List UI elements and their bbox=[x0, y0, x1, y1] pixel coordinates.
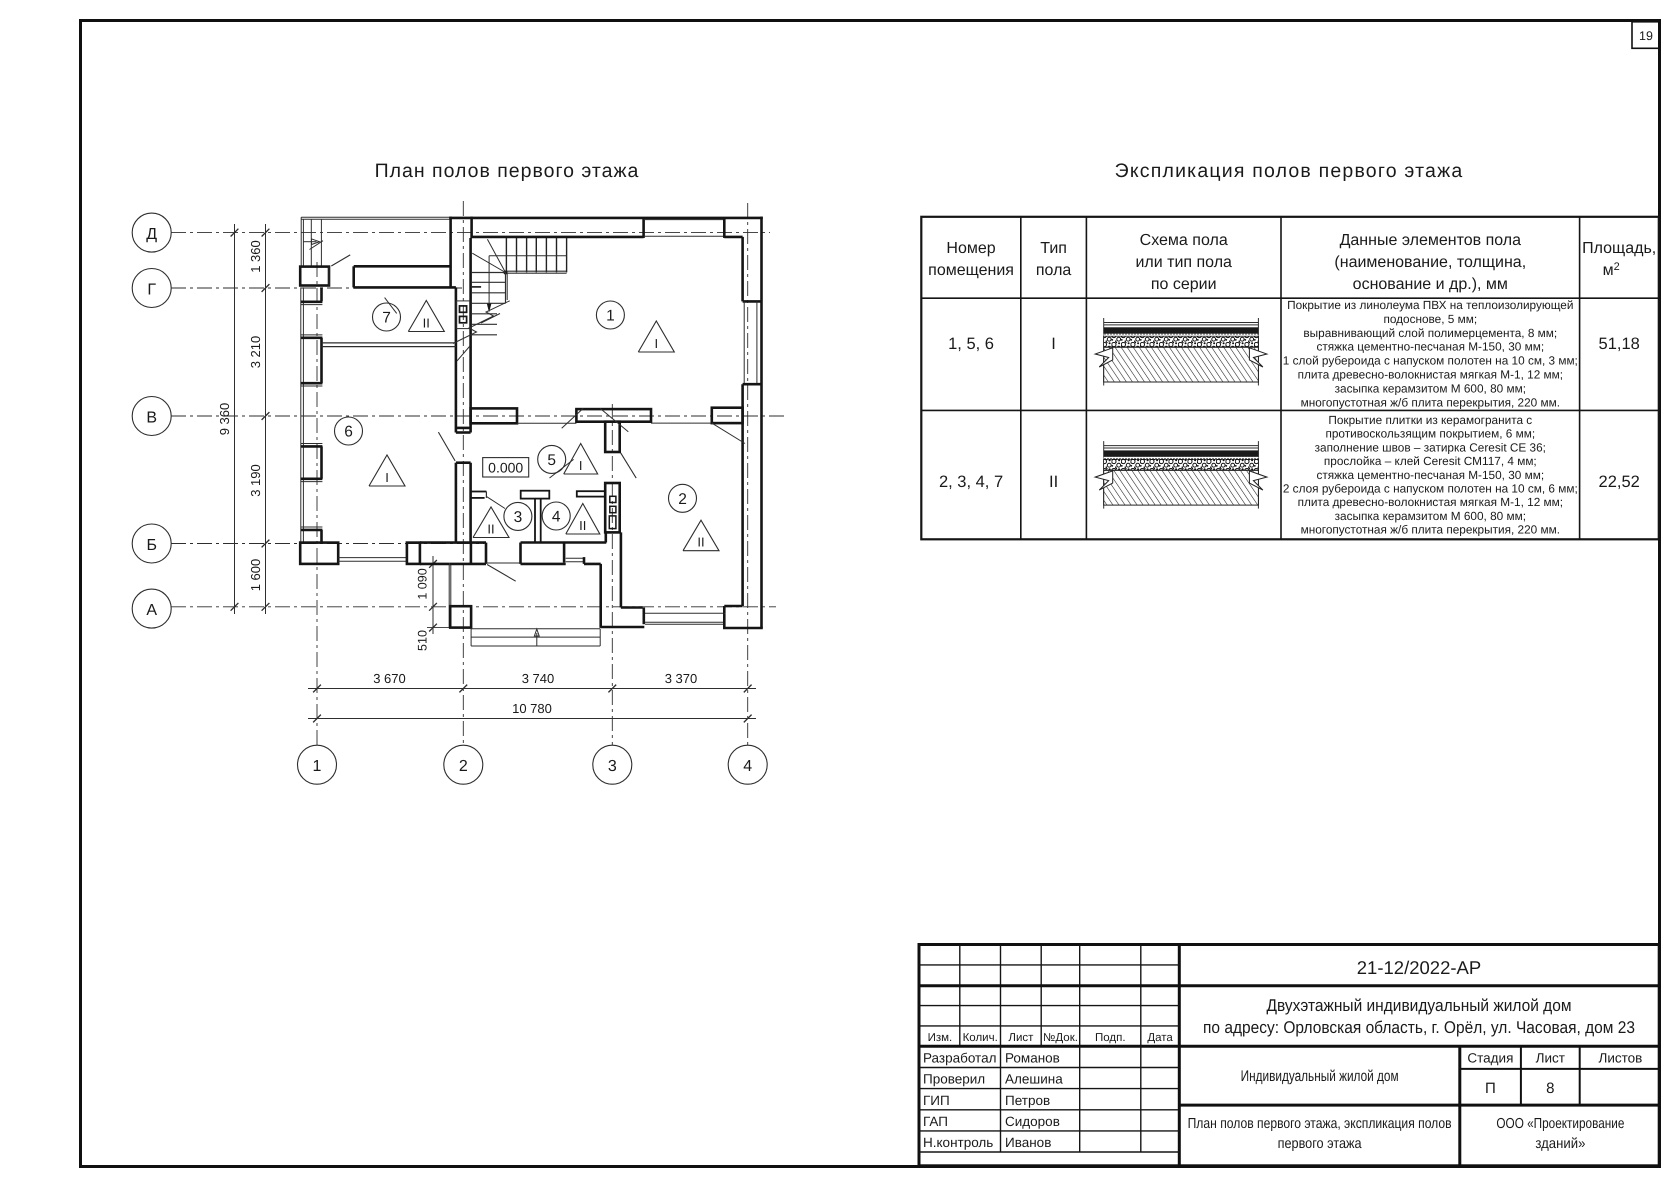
svg-text:1 360: 1 360 bbox=[248, 240, 263, 273]
svg-text:3 370: 3 370 bbox=[665, 671, 698, 686]
svg-text:Двухэтажный индивидуальный жил: Двухэтажный индивидуальный жилой дом bbox=[1267, 996, 1572, 1015]
svg-text:Б: Б bbox=[146, 537, 157, 554]
svg-text:Колич.: Колич. bbox=[963, 1032, 998, 1044]
svg-text:Романов: Романов bbox=[1005, 1051, 1060, 1066]
svg-text:засыпка керамзитом М 600, 80 м: засыпка керамзитом М 600, 80 мм; bbox=[1335, 509, 1526, 523]
svg-text:ООО «Проектирование: ООО «Проектирование bbox=[1496, 1116, 1624, 1132]
svg-text:Листов: Листов bbox=[1598, 1051, 1642, 1066]
svg-text:51,18: 51,18 bbox=[1599, 335, 1640, 353]
svg-text:Лист: Лист bbox=[1536, 1051, 1565, 1066]
svg-text:стяжка цементно-песчаная М-150: стяжка цементно-песчаная М-150, 30 мм; bbox=[1316, 340, 1544, 354]
svg-text:Стадия: Стадия bbox=[1467, 1051, 1513, 1066]
svg-text:Лист: Лист bbox=[1008, 1032, 1034, 1044]
svg-text:3 210: 3 210 bbox=[248, 336, 263, 369]
svg-text:4: 4 bbox=[743, 758, 752, 775]
svg-text:2: 2 bbox=[678, 491, 687, 508]
svg-text:ГИП: ГИП bbox=[923, 1093, 950, 1108]
svg-text:1, 5, 6: 1, 5, 6 bbox=[948, 335, 994, 353]
svg-text:пола: пола bbox=[1036, 262, 1072, 279]
svg-text:1 090: 1 090 bbox=[416, 568, 430, 599]
svg-text:Площадь,: Площадь, bbox=[1582, 240, 1656, 257]
svg-text:II: II bbox=[1049, 473, 1058, 491]
svg-text:многопустотная ж/б плита перек: многопустотная ж/б плита перекрытия, 220… bbox=[1301, 523, 1560, 537]
svg-text:А: А bbox=[146, 602, 157, 619]
svg-text:21-12/2022-АР: 21-12/2022-АР bbox=[1357, 957, 1481, 978]
svg-text:3 190: 3 190 bbox=[248, 464, 263, 497]
svg-text:Изм.: Изм. bbox=[928, 1032, 953, 1044]
svg-text:многопустотная ж/б плита перек: многопустотная ж/б плита перекрытия, 220… bbox=[1301, 395, 1560, 409]
svg-text:II: II bbox=[487, 522, 494, 537]
svg-text:Тип: Тип bbox=[1040, 240, 1067, 257]
svg-text:Проверил: Проверил bbox=[923, 1072, 985, 1087]
svg-text:Подп.: Подп. bbox=[1095, 1032, 1126, 1044]
svg-text:II: II bbox=[697, 535, 704, 550]
svg-text:прослойка – клей Ceresit СМ117: прослойка – клей Ceresit СМ117, 4 мм; bbox=[1324, 454, 1537, 468]
svg-text:I: I bbox=[385, 470, 389, 485]
svg-text:7: 7 bbox=[382, 310, 391, 327]
svg-text:№Док.: №Док. bbox=[1043, 1032, 1078, 1044]
svg-text:засыпка керамзитом М 600, 80 м: засыпка керамзитом М 600, 80 мм; bbox=[1335, 381, 1526, 395]
svg-text:Экспликация полов первого этаж: Экспликация полов первого этажа bbox=[1115, 160, 1464, 182]
svg-text:П: П bbox=[1485, 1080, 1496, 1097]
svg-text:9 360: 9 360 bbox=[217, 403, 232, 436]
svg-text:по серии: по серии bbox=[1151, 276, 1217, 293]
svg-text:помещения: помещения bbox=[928, 262, 1014, 279]
svg-text:В: В bbox=[146, 409, 157, 426]
svg-text:3: 3 bbox=[608, 758, 617, 775]
svg-text:противоскользящим покрытием, 6: противоскользящим покрытием, 6 мм; bbox=[1325, 427, 1535, 441]
svg-text:2, 3, 4, 7: 2, 3, 4, 7 bbox=[939, 473, 1003, 491]
svg-text:по адресу: Орловская область,: по адресу: Орловская область, г. Орёл, у… bbox=[1203, 1018, 1635, 1037]
svg-text:Иванов: Иванов bbox=[1005, 1135, 1051, 1150]
svg-text:I: I bbox=[654, 336, 658, 351]
svg-text:8: 8 bbox=[1546, 1080, 1554, 1097]
svg-text:3 670: 3 670 bbox=[373, 671, 406, 686]
svg-text:подоснове, 5 мм;: подоснове, 5 мм; bbox=[1383, 312, 1477, 326]
svg-text:2: 2 bbox=[459, 758, 468, 775]
svg-text:плита древесно-волокнистая мяг: плита древесно-волокнистая мягкая М-1, 1… bbox=[1298, 368, 1563, 382]
svg-text:19: 19 bbox=[1639, 29, 1653, 43]
svg-text:Сидоров: Сидоров bbox=[1005, 1114, 1060, 1129]
svg-text:2 слоя рубероида с напуском по: 2 слоя рубероида с напуском полотен на 1… bbox=[1283, 482, 1578, 496]
svg-text:6: 6 bbox=[344, 424, 353, 441]
svg-text:зданий»: зданий» bbox=[1535, 1136, 1585, 1152]
svg-text:Дата: Дата bbox=[1147, 1032, 1173, 1044]
svg-text:I: I bbox=[1051, 335, 1056, 353]
svg-text:Алешина: Алешина bbox=[1005, 1072, 1063, 1087]
svg-text:3 740: 3 740 bbox=[522, 671, 555, 686]
svg-text:Номер: Номер bbox=[946, 240, 995, 257]
svg-text:22,52: 22,52 bbox=[1599, 473, 1640, 491]
svg-text:План полов первого этажа, эксп: План полов первого этажа, экспликация по… bbox=[1188, 1116, 1452, 1132]
svg-text:плита древесно-волокнистая мяг: плита древесно-волокнистая мягкая М-1, 1… bbox=[1298, 495, 1563, 509]
svg-text:Покрытие плитки из керамограни: Покрытие плитки из керамогранита с bbox=[1328, 413, 1532, 427]
svg-text:заполнение швов – затирка Cere: заполнение швов – затирка Ceresit CE 36; bbox=[1315, 440, 1546, 454]
svg-text:Г: Г bbox=[147, 281, 156, 298]
svg-text:Разработал: Разработал bbox=[923, 1051, 996, 1066]
svg-text:510: 510 bbox=[416, 630, 430, 651]
svg-text:10 780: 10 780 bbox=[512, 701, 552, 716]
svg-text:основание и др.), мм: основание и др.), мм bbox=[1353, 276, 1508, 293]
svg-text:3: 3 bbox=[514, 509, 523, 526]
svg-text:I: I bbox=[579, 458, 583, 473]
svg-text:выравнивающий слой полимерцеме: выравнивающий слой полимерцемента, 8 мм; bbox=[1303, 326, 1557, 340]
svg-text:Д: Д bbox=[146, 226, 157, 243]
svg-text:II: II bbox=[423, 316, 430, 331]
svg-text:4: 4 bbox=[552, 509, 561, 526]
svg-text:1: 1 bbox=[313, 758, 322, 775]
svg-text:ГАП: ГАП bbox=[923, 1114, 948, 1129]
svg-text:стяжка цементно-песчаная М-150: стяжка цементно-песчаная М-150, 30 мм; bbox=[1316, 468, 1544, 482]
svg-text:Индивидуальный жилой дом: Индивидуальный жилой дом bbox=[1241, 1068, 1399, 1085]
svg-text:Покрытие из линолеума ПВХ на т: Покрытие из линолеума ПВХ на теплоизолир… bbox=[1287, 298, 1573, 312]
svg-text:(наименование, толщина,: (наименование, толщина, bbox=[1334, 254, 1526, 271]
svg-text:Схема пола: Схема пола bbox=[1140, 232, 1228, 249]
svg-text:5: 5 bbox=[547, 452, 556, 469]
svg-text:первого этажа: первого этажа bbox=[1278, 1136, 1363, 1152]
svg-text:или тип пола: или тип пола bbox=[1135, 254, 1232, 271]
svg-text:Петров: Петров bbox=[1005, 1093, 1050, 1108]
svg-text:II: II bbox=[579, 518, 586, 533]
svg-text:0.000: 0.000 bbox=[488, 459, 523, 475]
svg-text:1: 1 bbox=[606, 308, 615, 325]
svg-text:План полов первого этажа: План полов первого этажа bbox=[375, 160, 640, 182]
svg-text:1 слой рубероида с напуском по: 1 слой рубероида с напуском полотен на 1… bbox=[1283, 354, 1578, 368]
svg-text:1 600: 1 600 bbox=[248, 559, 263, 592]
svg-text:Н.контроль: Н.контроль bbox=[923, 1135, 993, 1150]
svg-text:Данные элементов пола: Данные элементов пола bbox=[1340, 232, 1522, 249]
